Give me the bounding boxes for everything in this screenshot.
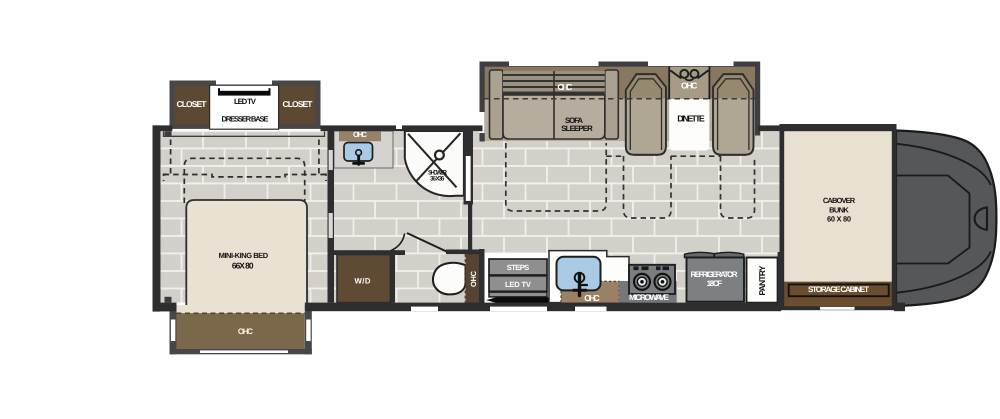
svg-text:STEPS: STEPS [507, 263, 530, 272]
svg-text:CABOVER: CABOVER [823, 196, 856, 205]
svg-text:66X 80: 66X 80 [232, 260, 254, 270]
svg-text:DINETTE: DINETTE [677, 114, 705, 124]
svg-text:MICROWAVE: MICROWAVE [629, 293, 670, 302]
svg-text:CLOSET: CLOSET [283, 99, 314, 109]
svg-text:LED TV: LED TV [234, 97, 257, 106]
svg-text:OHC: OHC [353, 130, 368, 139]
svg-text:OHC: OHC [584, 293, 600, 303]
svg-text:MINI-KING BED: MINI-KING BED [219, 251, 269, 260]
svg-text:W/D: W/D [355, 277, 371, 286]
svg-text:LED TV: LED TV [505, 280, 532, 289]
svg-text:60 X 80: 60 X 80 [827, 215, 851, 224]
svg-text:36 X36: 36 X36 [430, 176, 445, 183]
svg-text:STORAGE CABINET: STORAGE CABINET [808, 285, 869, 294]
svg-text:CLOSET: CLOSET [177, 99, 208, 109]
svg-text:OHC: OHC [681, 81, 697, 91]
svg-text:OHC: OHC [557, 82, 572, 92]
svg-text:PANTRY: PANTRY [757, 265, 767, 295]
svg-text:DRESSER BASE: DRESSER BASE [222, 114, 269, 123]
svg-text:OHC: OHC [238, 327, 253, 336]
svg-text:BUNK: BUNK [829, 205, 849, 214]
svg-text:18CF: 18CF [707, 279, 723, 288]
svg-text:OHC: OHC [469, 270, 478, 287]
svg-text:SLEEPER: SLEEPER [561, 124, 593, 133]
